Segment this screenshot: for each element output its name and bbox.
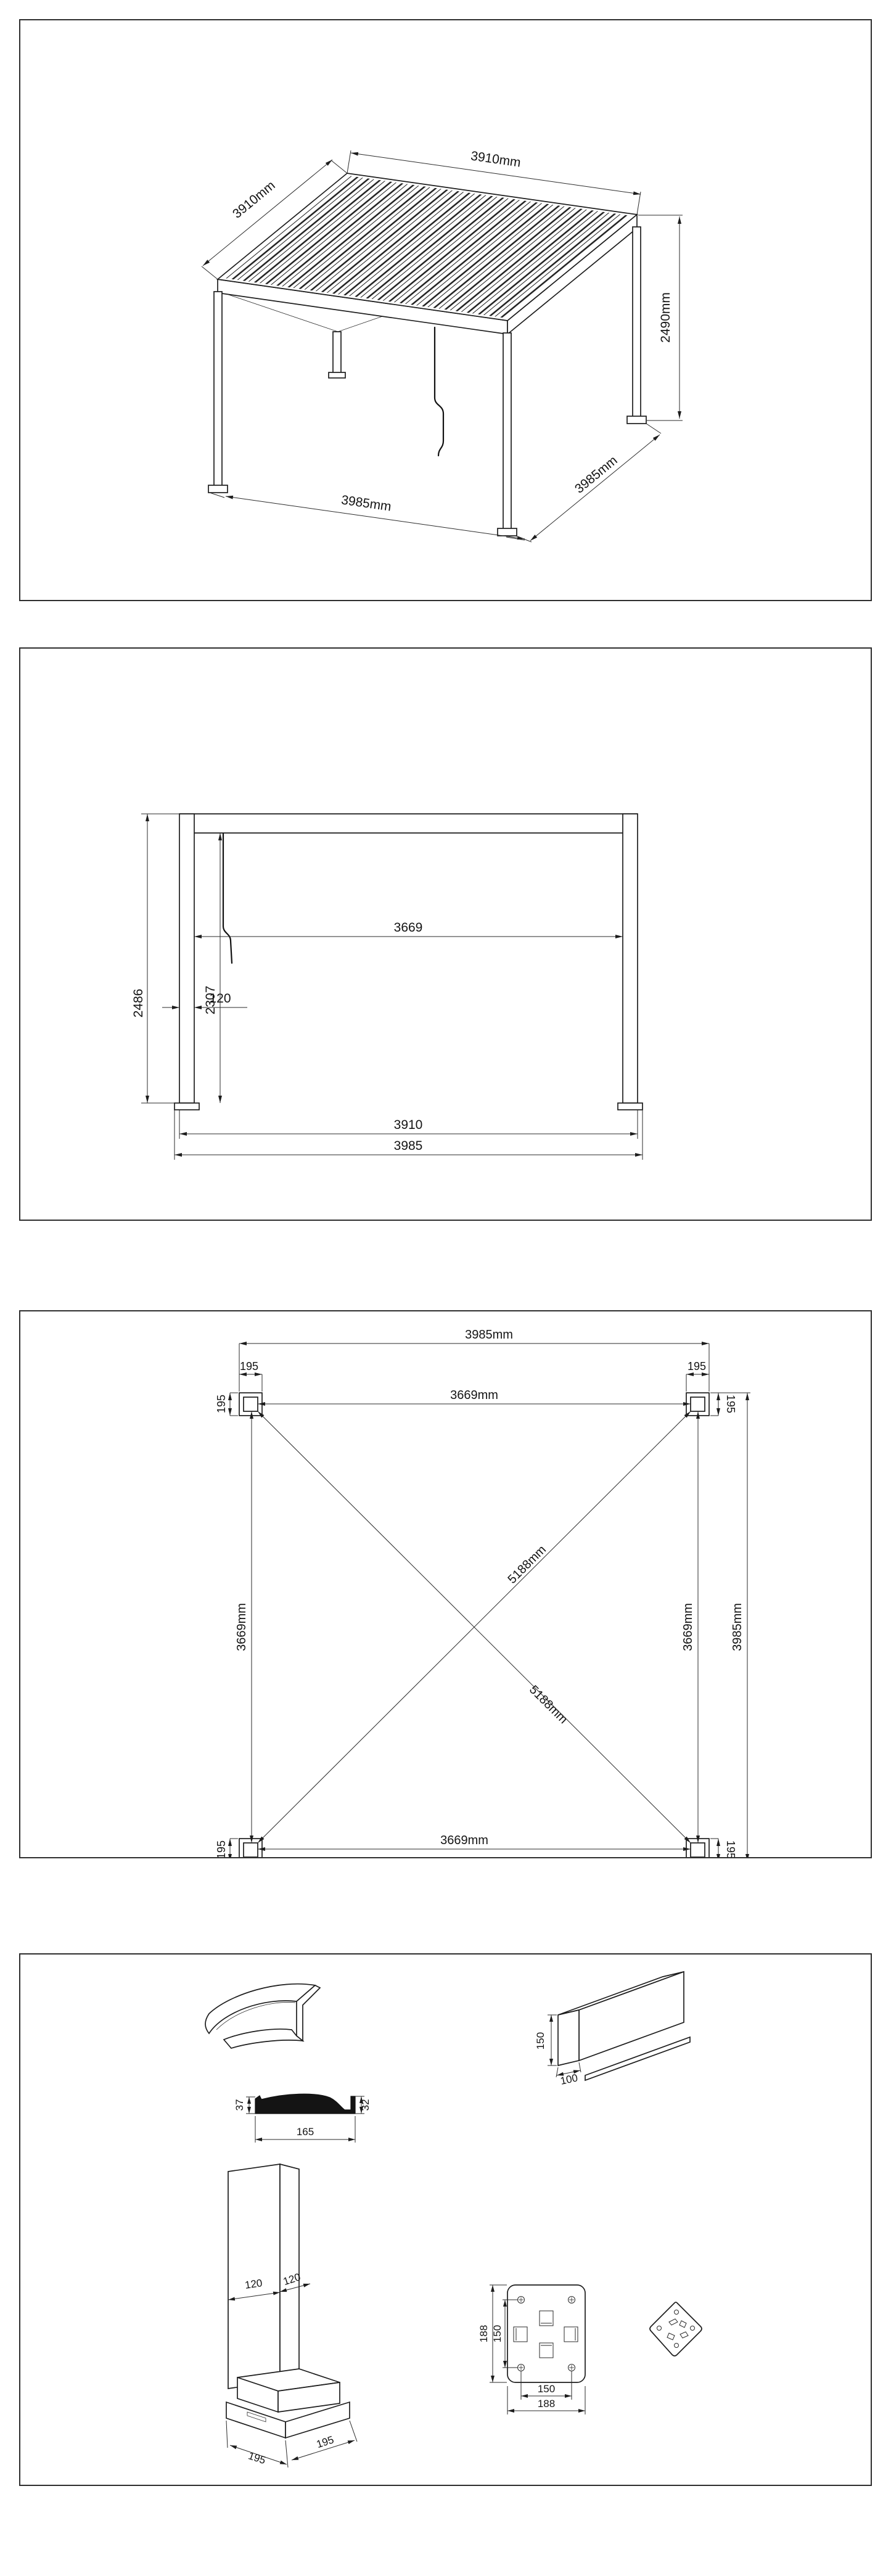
dim-beam-height: 150 (535, 2032, 546, 2049)
dim-louver-right-height: 32 (359, 2099, 371, 2111)
motor-cable (223, 834, 232, 963)
dim-inner-span: 3669 (394, 921, 423, 935)
dimension-lines (230, 1343, 750, 1857)
dim-plate-tl-height: 195 (215, 1395, 228, 1413)
louver-blade-3d-sketch (205, 1984, 320, 2048)
dim-base-width-front: 3985mm (340, 493, 392, 514)
dim-post-width: 120 (209, 991, 231, 1006)
panel-plan-view: 3985mm 3669mm 195 195 195 195 195 195 19… (19, 1310, 872, 1858)
dim-roof-depth-left: 3910mm (230, 178, 278, 221)
dim-base-span: 3985 (394, 1139, 423, 1153)
drawing-sheet: 3910mm 3910mm 2490mm 3985mm 3985mm (0, 0, 891, 2576)
base-plate-detail: 188 150 150 188 (478, 2285, 585, 2414)
dimension-labels: 3985mm 3669mm 195 195 195 195 195 195 19… (215, 1328, 744, 1857)
dim-louver-width: 165 (297, 2126, 314, 2138)
corner-base-plates (239, 1393, 709, 1857)
louver-profile-section: 37 32 165 (234, 2094, 371, 2143)
dim-inner-height-left: 3669mm (235, 1603, 248, 1651)
dim-plate-bolt-height: 150 (491, 2325, 503, 2342)
dim-louver-left-height: 37 (234, 2099, 245, 2111)
elevation-drawing: 2486 2307 120 3669 3910 3985 (20, 649, 871, 1220)
dim-post-span: 3910 (394, 1118, 423, 1132)
dim-post-base-front: 195 (247, 2450, 267, 2466)
dim-outer-height: 3985mm (731, 1603, 744, 1651)
dim-outer-width: 3985mm (465, 1328, 513, 1342)
dim-plate-tr-height: 195 (725, 1395, 737, 1413)
frame-structure (175, 814, 643, 1110)
dim-plate-bl-height: 195 (215, 1840, 228, 1857)
dim-diagonal-up: 5188mm (505, 1543, 549, 1586)
panel-isometric-view: 3910mm 3910mm 2490mm 3985mm 3985mm (19, 19, 872, 601)
dim-post-height: 2490mm (659, 292, 673, 343)
beam-section-3d: 150 100 (535, 1972, 690, 2087)
plan-drawing: 3985mm 3669mm 195 195 195 195 195 195 19… (20, 1311, 871, 1857)
dim-plate-outer-width: 188 (538, 2398, 555, 2410)
dim-total-height: 2486 (131, 989, 146, 1018)
panel-front-elevation: 2486 2307 120 3669 3910 3985 (19, 647, 872, 1221)
dim-inner-width-bottom: 3669mm (440, 1834, 488, 1847)
dim-inner-width: 3669mm (450, 1388, 498, 1402)
dim-inner-height-right: 3669mm (681, 1603, 695, 1651)
dim-plate-tr-width: 195 (688, 1360, 706, 1372)
motor-cable (435, 327, 443, 456)
details-drawing: 37 32 165 150 100 (20, 1955, 871, 2485)
dim-base-depth-side: 3985mm (572, 453, 620, 496)
dim-post-base-side: 195 (315, 2434, 335, 2450)
diagonal-dimensions (258, 1411, 691, 1843)
dim-plate-tl-width: 195 (240, 1360, 258, 1372)
dim-plate-outer-height: 188 (478, 2325, 490, 2342)
dim-diagonal-down: 5188mm (527, 1683, 570, 1726)
dim-plate-bolt-width: 150 (538, 2383, 555, 2395)
isometric-pergola-drawing: 3910mm 3910mm 2490mm 3985mm 3985mm (20, 20, 871, 600)
panel-component-details: 37 32 165 150 100 (19, 1953, 872, 2486)
post-base-3d: 120 120 195 195 (226, 2164, 357, 2467)
dim-post-width-front: 120 (244, 2277, 263, 2291)
dimension-labels: 2486 2307 120 3669 3910 3985 (131, 921, 422, 1153)
dim-plate-br-height: 195 (725, 1840, 737, 1857)
fitting-plate-3d (650, 2302, 702, 2356)
dim-roof-width-top: 3910mm (470, 149, 522, 170)
